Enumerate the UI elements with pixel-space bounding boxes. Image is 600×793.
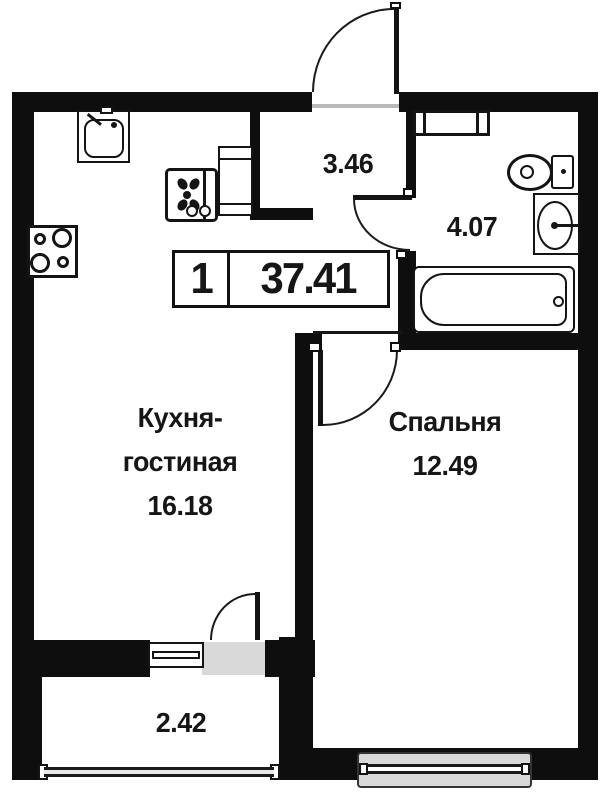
- badge-area-cell: 37.41: [230, 254, 387, 304]
- stove-burner-large-1: [52, 228, 72, 248]
- wall-kitchen-balcony-left: [12, 640, 150, 677]
- stove-burner-small-2: [57, 256, 69, 268]
- kitchen-living-name-line2: гостиная: [65, 440, 295, 484]
- wall-kitchen-bedroom: [295, 343, 313, 643]
- kitchen-living-name-line1: Кухня-: [65, 396, 295, 440]
- bedroom-window: [361, 764, 528, 774]
- toilet-tank-dot: [561, 169, 566, 174]
- fridge-hinge-circle-2: [199, 205, 211, 217]
- bedroom-door-hinge-cap: [308, 342, 321, 352]
- bathtub-drain: [553, 296, 564, 307]
- kitchen-sink-faucet: [100, 106, 113, 114]
- fridge-fan-center: [183, 191, 191, 199]
- entrance-door-cap: [390, 2, 401, 9]
- wall-top-right: [399, 92, 598, 112]
- kitchen-sink-drain-dot: [111, 122, 117, 128]
- bedroom-door-jamb-cap: [390, 342, 401, 352]
- entrance-door-leaf: [394, 6, 399, 94]
- bedroom-door-header-line: [313, 331, 403, 334]
- bedroom-window-cap-right: [521, 763, 530, 775]
- bathroom-door-hinge-cap: [403, 188, 414, 197]
- fridge-hinge-circle-1: [186, 205, 198, 217]
- entrance-threshold: [312, 104, 399, 108]
- kitchen-living-label: Кухня- гостиная 16.18: [65, 396, 295, 528]
- floor-plan: 1 37.41 Кухня- гостиная 16.18 Спальня 12…: [0, 0, 600, 793]
- wall-left: [12, 92, 34, 677]
- area-badge: 1 37.41: [172, 250, 390, 308]
- bedroom-label: Спальня 12.49: [349, 400, 541, 488]
- stove-burner-small-1: [34, 233, 46, 245]
- wall-hallway-stub: [250, 208, 313, 220]
- bathroom-door-arc: [353, 199, 410, 251]
- toilet-bowl-circle: [520, 165, 534, 179]
- bedroom-name: Спальня: [349, 400, 541, 444]
- bathtub-inner: [420, 273, 567, 326]
- washbasin-faucet-dot: [551, 222, 558, 229]
- stove-burner-large-2: [30, 253, 50, 273]
- bathroom-area-label: 4.07: [414, 205, 529, 249]
- entrance-door-arc: [312, 8, 394, 92]
- wall-bathroom-bedroom: [398, 333, 598, 350]
- bathroom-cabinet-divider-1: [423, 112, 426, 134]
- wall-top-left: [12, 92, 312, 112]
- bathroom-cabinet-divider-2: [476, 112, 479, 134]
- rooms-count: 1: [190, 254, 211, 304]
- bedroom-area: 12.49: [349, 444, 541, 488]
- balcony-window-glass-line: [152, 651, 200, 659]
- balcony-area-label: 2.42: [123, 701, 238, 745]
- hallway-area-label: 3.46: [290, 142, 405, 186]
- bedroom-window-cap-left: [359, 763, 368, 775]
- hall-cabinet-middle: [218, 158, 253, 205]
- wall-balcony-right: [279, 637, 313, 780]
- balcony-door-sill: [202, 642, 265, 675]
- badge-rooms-cell: 1: [175, 253, 230, 305]
- wall-right: [578, 92, 598, 780]
- bathroom-door-jamb-cap: [396, 250, 407, 259]
- balcony-front-window: [44, 767, 274, 777]
- kitchen-sink-basin: [84, 119, 124, 158]
- balcony-door-leaf: [255, 592, 260, 640]
- balcony-door-arc: [210, 593, 255, 640]
- total-area: 37.41: [261, 254, 356, 304]
- hall-cabinet-bottom: [218, 203, 253, 216]
- kitchen-living-area: 16.18: [65, 484, 295, 528]
